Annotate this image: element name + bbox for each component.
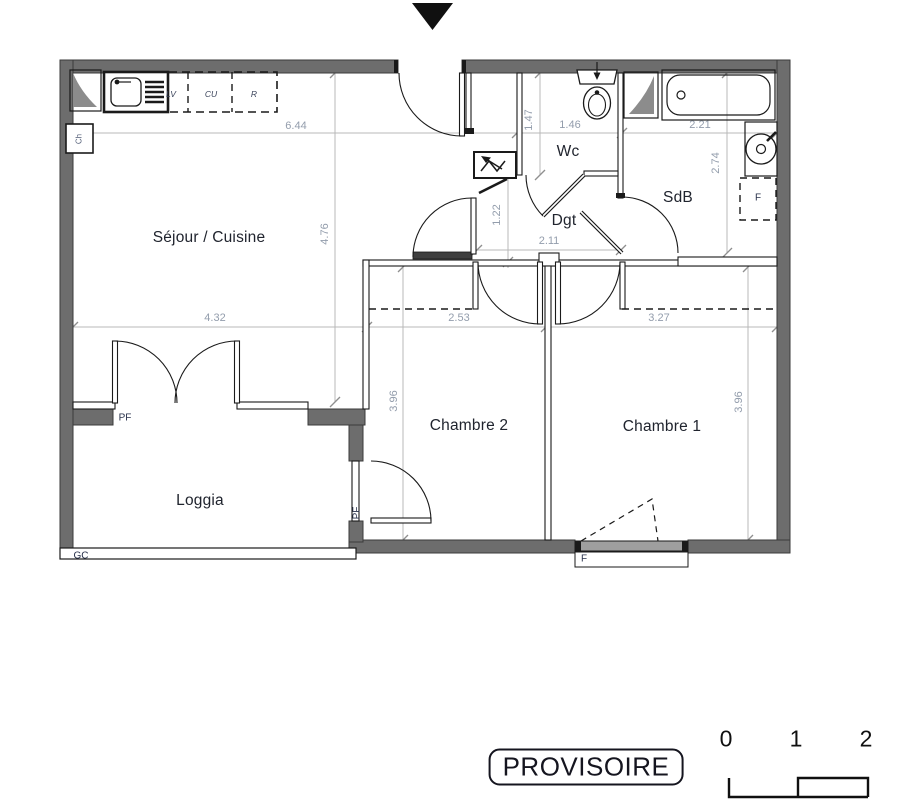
room-label-dgt: Dgt bbox=[552, 212, 577, 230]
label-f-window: F bbox=[581, 554, 587, 565]
label-pf-sejour: PF bbox=[119, 413, 132, 424]
dim-mid-sejour: 4.32 bbox=[204, 312, 225, 324]
room-label-chambre2: Chambre 2 bbox=[430, 417, 508, 435]
label-kitchen-cu: CU bbox=[205, 89, 217, 99]
label-kitchen-r: R bbox=[251, 89, 257, 99]
room-label-wc: Wc bbox=[557, 143, 580, 161]
room-label-sejour: Séjour / Cuisine bbox=[153, 229, 266, 247]
chambre2-french-door bbox=[371, 461, 431, 523]
sejour-french-doors bbox=[113, 341, 240, 403]
entrance-arrow-icon bbox=[412, 3, 453, 30]
toilet bbox=[577, 62, 617, 119]
bathtub bbox=[662, 70, 775, 120]
dim-top-sejour: 6.44 bbox=[285, 120, 306, 132]
dim-dgt-width: 2.11 bbox=[539, 235, 560, 247]
room-label-chambre1: Chambre 1 bbox=[623, 418, 701, 436]
label-f-sdb: F bbox=[755, 193, 761, 204]
electrical-panel bbox=[474, 152, 516, 178]
label-gc: GC bbox=[74, 551, 89, 562]
provisoire-stamp: PROVISOIRE bbox=[489, 749, 684, 786]
loggia-railing bbox=[60, 548, 356, 559]
label-kitchen-lv: LV bbox=[166, 89, 176, 99]
label-pf-loggia: PF bbox=[352, 507, 363, 520]
scale-label-0: 0 bbox=[720, 726, 733, 753]
scale-label-2: 2 bbox=[860, 726, 873, 753]
dim-sdb-depth: 2.74 bbox=[710, 152, 722, 173]
washbasin bbox=[745, 122, 777, 176]
label-boiler: Ch bbox=[75, 134, 84, 144]
room-label-sdb: SdB bbox=[663, 189, 693, 207]
dimension-lines bbox=[66, 68, 784, 545]
chambre2-door bbox=[478, 262, 543, 324]
scale-bar bbox=[729, 778, 868, 797]
dim-chambre2-depth: 3.96 bbox=[388, 390, 400, 411]
scale-label-1: 1 bbox=[790, 726, 803, 753]
sejour-dgt-door bbox=[413, 198, 476, 259]
duct-bathroom bbox=[624, 72, 658, 118]
interior-walls bbox=[73, 73, 777, 540]
room-label-loggia: Loggia bbox=[176, 492, 224, 510]
outer-walls bbox=[60, 60, 790, 559]
dim-dgt-depth: 1.22 bbox=[491, 204, 503, 225]
dim-chambre1-depth: 3.96 bbox=[733, 391, 745, 412]
dim-sejour-depth: 4.76 bbox=[319, 223, 331, 244]
dim-top-wc: 1.46 bbox=[559, 119, 580, 131]
chambre1-door bbox=[556, 262, 621, 324]
floor-plan-page: Séjour / Cuisine Wc Dgt SdB Chambre 2 Ch… bbox=[0, 0, 912, 800]
entrance-door bbox=[394, 60, 466, 136]
duct-kitchen bbox=[70, 70, 101, 111]
dim-wc-depth: 1.47 bbox=[523, 109, 535, 130]
dim-mid-chambre1: 3.27 bbox=[648, 312, 669, 324]
dimension-ticks bbox=[68, 68, 782, 545]
wc-door bbox=[526, 175, 584, 216]
dim-top-sdb: 2.21 bbox=[689, 119, 710, 131]
chambre1-window bbox=[575, 499, 688, 567]
dim-mid-chambre2: 2.53 bbox=[448, 312, 469, 324]
cabinet-door-line bbox=[479, 179, 507, 193]
floor-plan-drawing bbox=[0, 0, 912, 800]
